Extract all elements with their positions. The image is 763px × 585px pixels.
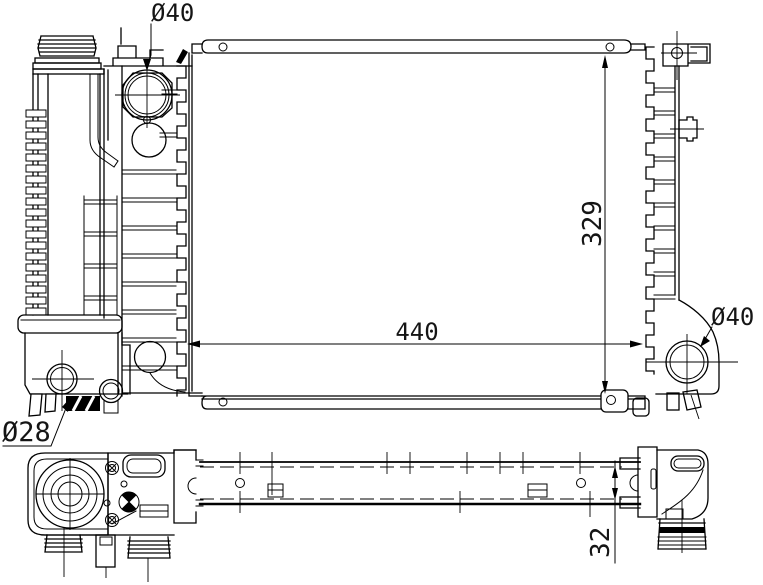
strip-clips	[268, 484, 547, 497]
outlet-centerline	[691, 395, 699, 419]
strip-hole	[236, 479, 245, 488]
dim-hose-diameter-label: Ø28	[2, 417, 51, 448]
bottom-left-assembly	[28, 450, 203, 582]
slot-outer	[671, 456, 704, 471]
outlet-port-40	[646, 334, 738, 394]
technical-drawing-page: 440 329 Ø40 Ø40 Ø28	[0, 0, 763, 585]
dim-core-depth-label: 32	[586, 527, 616, 558]
small-hole	[121, 481, 127, 487]
outlet-ribs	[658, 500, 706, 553]
header-connectors	[192, 44, 645, 53]
top-port-slot-inner	[127, 459, 161, 473]
dimension-core-height: 329	[578, 55, 608, 394]
plate-lower-circle	[135, 342, 166, 373]
bottom-stubs	[45, 528, 170, 582]
bottom-core-strip	[200, 452, 640, 517]
outlet-foot	[667, 393, 679, 410]
plate-bottom-curve	[150, 373, 185, 392]
bracket-notch	[630, 475, 638, 491]
dim-core-height-label: 329	[578, 200, 608, 247]
right-strip-bracket	[638, 447, 657, 517]
header-hole	[606, 43, 614, 51]
dim-outlet-diameter-label: Ø40	[711, 303, 754, 331]
slot-inner	[674, 459, 701, 468]
tank-neck	[33, 69, 104, 74]
plate-serrated-edge	[177, 66, 186, 396]
tank-ribs	[26, 110, 46, 315]
radiator-technical-drawing: 440 329 Ø40 Ø40 Ø28	[0, 0, 763, 585]
tank-bottom-flange	[18, 315, 122, 333]
bracket-slot	[651, 469, 656, 489]
dimension-core-depth: 32	[586, 461, 618, 563]
drain-symbol	[119, 492, 139, 512]
right-serrated-edge	[646, 47, 654, 374]
top-header	[202, 40, 631, 53]
radiator-cap	[33, 36, 101, 69]
bottom-view: 32	[28, 447, 708, 582]
expansion-tank	[18, 36, 130, 416]
front-view: 440 329 Ø40 Ø40 Ø28	[2, 0, 754, 448]
bottom-header	[202, 396, 645, 409]
foot-tab	[29, 394, 42, 416]
weld-mark	[176, 49, 188, 64]
plate-ladder	[122, 90, 177, 370]
outlet-foot	[683, 390, 701, 410]
lower-tab	[633, 398, 649, 416]
outlet-housing	[656, 300, 719, 394]
right-tank-ladder	[654, 88, 675, 299]
tank-bottom-rings	[36, 458, 104, 530]
inlet-port-40	[115, 62, 180, 128]
small-block	[666, 509, 683, 519]
dimension-core-width: 440	[187, 318, 643, 348]
plate-upper-circle	[132, 123, 166, 157]
left-strip-bracket	[174, 450, 203, 523]
small-port	[100, 380, 123, 414]
right-tank	[633, 31, 738, 419]
strip-hole	[577, 479, 586, 488]
header-hole	[219, 43, 227, 51]
dim-core-width-label: 440	[395, 318, 438, 346]
dim-inlet-diameter-label: Ø40	[151, 0, 194, 27]
tank-bottom-body	[25, 333, 130, 394]
left-side-tank	[104, 28, 202, 396]
right-tank-edge	[675, 66, 679, 300]
assembly-body	[42, 450, 196, 535]
label-inlet-diameter: Ø40	[143, 0, 194, 71]
hatched-connector	[66, 396, 100, 411]
foot-tab	[45, 394, 56, 412]
tank-ladder	[84, 196, 117, 314]
small-hole	[104, 500, 110, 506]
right-top-bracket	[663, 44, 710, 66]
top-port-slot	[123, 455, 165, 477]
tank-curve	[662, 470, 703, 514]
